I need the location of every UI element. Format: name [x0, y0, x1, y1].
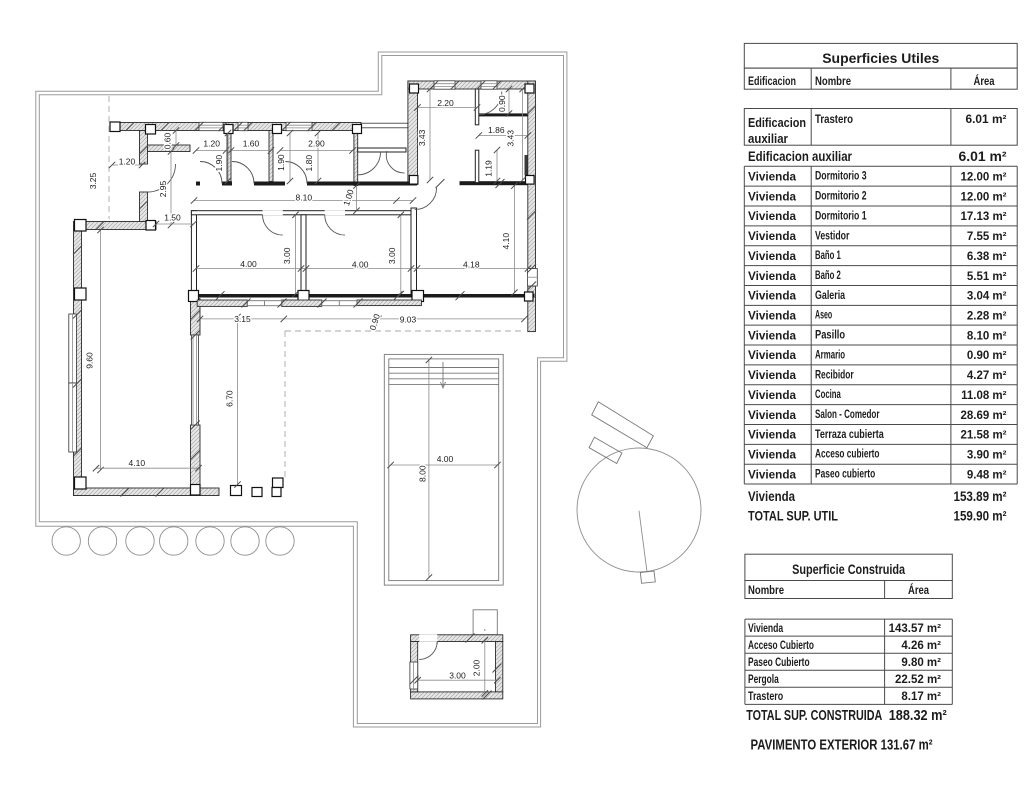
svg-text:Vestidor: Vestidor: [815, 230, 850, 242]
svg-text:8.10: 8.10: [296, 192, 313, 202]
svg-text:Edificacion: Edificacion: [748, 76, 796, 88]
svg-text:Dormitorio 1: Dormitorio 1: [815, 210, 867, 222]
svg-text:PAVIMENTO EXTERIOR 131.67 m²: PAVIMENTO EXTERIOR 131.67 m²: [751, 738, 933, 754]
svg-text:Vivienda: Vivienda: [748, 489, 795, 504]
svg-text:Superficies Utiles: Superficies Utiles: [822, 51, 939, 66]
svg-text:Nombre: Nombre: [748, 585, 784, 597]
svg-text:2.90: 2.90: [308, 139, 325, 149]
svg-text:28.69 m²: 28.69 m²: [960, 410, 1006, 422]
svg-text:1.20: 1.20: [119, 157, 136, 167]
svg-text:Galeria: Galeria: [815, 290, 846, 302]
svg-text:Baño 1: Baño 1: [815, 250, 841, 262]
svg-text:Vivienda: Vivienda: [748, 330, 797, 342]
svg-text:Dormitorio 2: Dormitorio 2: [815, 191, 867, 203]
svg-text:Armario: Armario: [815, 349, 845, 361]
svg-text:22.52 m²: 22.52 m²: [895, 674, 941, 686]
svg-text:3.43: 3.43: [505, 130, 515, 147]
svg-text:4.10: 4.10: [501, 233, 511, 250]
svg-text:9.48 m²: 9.48 m²: [967, 469, 1007, 481]
svg-text:143.57 m²: 143.57 m²: [889, 623, 942, 635]
svg-text:1.90: 1.90: [276, 154, 286, 171]
svg-text:4.00: 4.00: [240, 259, 257, 269]
svg-text:2.00: 2.00: [471, 659, 481, 676]
svg-text:8.10 m²: 8.10 m²: [967, 330, 1007, 342]
svg-text:Edificacion auxiliar: Edificacion auxiliar: [748, 149, 853, 164]
svg-text:21.58 m²: 21.58 m²: [960, 430, 1006, 442]
svg-text:11.08 m²: 11.08 m²: [961, 390, 1007, 402]
svg-text:3.15: 3.15: [234, 314, 251, 324]
svg-text:159.90 m²: 159.90 m²: [954, 508, 1007, 524]
svg-text:6.38 m²: 6.38 m²: [967, 251, 1007, 263]
svg-text:Vivienda: Vivienda: [748, 370, 797, 382]
svg-text:7.55 m²: 7.55 m²: [967, 231, 1007, 243]
svg-text:TOTAL SUP. CONSTRUIDA: TOTAL SUP. CONSTRUIDA: [746, 708, 882, 724]
svg-text:6.70: 6.70: [225, 390, 235, 407]
svg-text:Trastero: Trastero: [815, 114, 853, 126]
svg-text:TOTAL SUP. UTIL: TOTAL SUP. UTIL: [748, 508, 838, 524]
svg-text:Área: Área: [908, 584, 929, 597]
svg-text:4.27 m²: 4.27 m²: [967, 370, 1007, 382]
svg-text:17.13 m²: 17.13 m²: [960, 211, 1006, 223]
svg-text:Dormitorio 3: Dormitorio 3: [815, 171, 867, 183]
svg-text:9.80 m²: 9.80 m²: [901, 657, 941, 669]
svg-text:0.90 m²: 0.90 m²: [967, 350, 1007, 362]
svg-text:Vivienda: Vivienda: [748, 211, 797, 223]
svg-text:Vivienda: Vivienda: [748, 191, 797, 203]
svg-text:Salon - Comedor: Salon - Comedor: [815, 409, 880, 421]
svg-text:Vivienda: Vivienda: [748, 623, 784, 635]
svg-text:3.90 m²: 3.90 m²: [967, 450, 1007, 462]
svg-text:auxiliar: auxiliar: [748, 131, 788, 146]
svg-text:Vivienda: Vivienda: [748, 350, 797, 362]
svg-text:2.95: 2.95: [158, 180, 168, 197]
svg-text:4.00: 4.00: [437, 454, 454, 464]
svg-text:153.89 m²: 153.89 m²: [954, 489, 1007, 504]
svg-text:Vivienda: Vivienda: [748, 251, 797, 263]
svg-text:Acceso cubierto: Acceso cubierto: [815, 449, 880, 461]
svg-text:12.00 m²: 12.00 m²: [960, 191, 1006, 203]
svg-text:Acceso Cubierto: Acceso Cubierto: [748, 640, 814, 652]
svg-text:Nombre: Nombre: [815, 76, 851, 88]
svg-text:Vivienda: Vivienda: [748, 430, 797, 442]
svg-text:Trastero: Trastero: [748, 691, 783, 703]
svg-text:Baño 2: Baño 2: [815, 270, 841, 282]
svg-text:8.00: 8.00: [417, 465, 427, 482]
svg-text:6.01 m²: 6.01 m²: [966, 114, 1007, 126]
svg-text:Pergola: Pergola: [748, 674, 779, 686]
svg-text:Vivienda: Vivienda: [748, 291, 797, 303]
svg-text:Vivienda: Vivienda: [748, 469, 797, 481]
svg-text:Terraza cubierta: Terraza cubierta: [815, 429, 884, 441]
svg-text:Edificacion: Edificacion: [748, 115, 806, 130]
svg-text:Vivienda: Vivienda: [748, 410, 797, 422]
svg-text:3.00: 3.00: [449, 671, 466, 681]
svg-text:1.50: 1.50: [164, 213, 181, 223]
svg-text:1.19: 1.19: [484, 160, 494, 177]
svg-text:Superficie Construida: Superficie Construida: [792, 562, 905, 577]
svg-text:12.00 m²: 12.00 m²: [960, 172, 1006, 184]
svg-text:188.32 m²: 188.32 m²: [889, 708, 947, 724]
svg-text:3.04 m²: 3.04 m²: [967, 291, 1007, 303]
svg-text:Área: Área: [974, 75, 995, 88]
svg-text:8.17 m²: 8.17 m²: [901, 691, 941, 703]
svg-text:2.28 m²: 2.28 m²: [967, 311, 1007, 323]
svg-text:4.10: 4.10: [129, 458, 146, 468]
svg-text:3.00: 3.00: [387, 247, 397, 264]
svg-text:1.90: 1.90: [214, 155, 224, 172]
svg-text:0.90: 0.90: [497, 95, 507, 112]
svg-text:Vivienda: Vivienda: [748, 390, 797, 402]
svg-text:0.60: 0.60: [163, 132, 173, 149]
svg-text:9.03: 9.03: [400, 314, 417, 324]
svg-text:Aseo: Aseo: [815, 310, 832, 322]
svg-text:1.60: 1.60: [243, 139, 260, 149]
svg-text:Cocina: Cocina: [815, 389, 841, 401]
svg-text:1.86: 1.86: [488, 125, 505, 135]
svg-text:Paseo cubierto: Paseo cubierto: [815, 469, 875, 481]
svg-text:4.26 m²: 4.26 m²: [901, 640, 941, 652]
svg-text:Recibidor: Recibidor: [815, 369, 854, 381]
svg-text:4.18: 4.18: [463, 260, 480, 270]
svg-text:Vivienda: Vivienda: [748, 450, 797, 462]
svg-text:1.80: 1.80: [304, 155, 314, 172]
svg-text:4.00: 4.00: [352, 260, 369, 270]
svg-text:9.60: 9.60: [85, 352, 95, 369]
svg-text:Vivienda: Vivienda: [748, 271, 797, 283]
svg-text:Pasillo: Pasillo: [815, 330, 845, 342]
svg-text:5.51 m²: 5.51 m²: [967, 271, 1007, 283]
svg-text:3.00: 3.00: [282, 247, 292, 264]
svg-text:Paseo Cubierto: Paseo Cubierto: [748, 657, 810, 669]
svg-text:Vivienda: Vivienda: [748, 311, 797, 323]
svg-text:3.43: 3.43: [417, 129, 427, 146]
svg-text:6.01 m²: 6.01 m²: [959, 149, 1008, 164]
svg-text:1.20: 1.20: [203, 139, 220, 149]
svg-text:2.20: 2.20: [437, 98, 454, 108]
svg-text:Vivienda: Vivienda: [748, 231, 797, 243]
svg-text:Vivienda: Vivienda: [748, 172, 797, 184]
svg-text:3.25: 3.25: [88, 172, 98, 189]
